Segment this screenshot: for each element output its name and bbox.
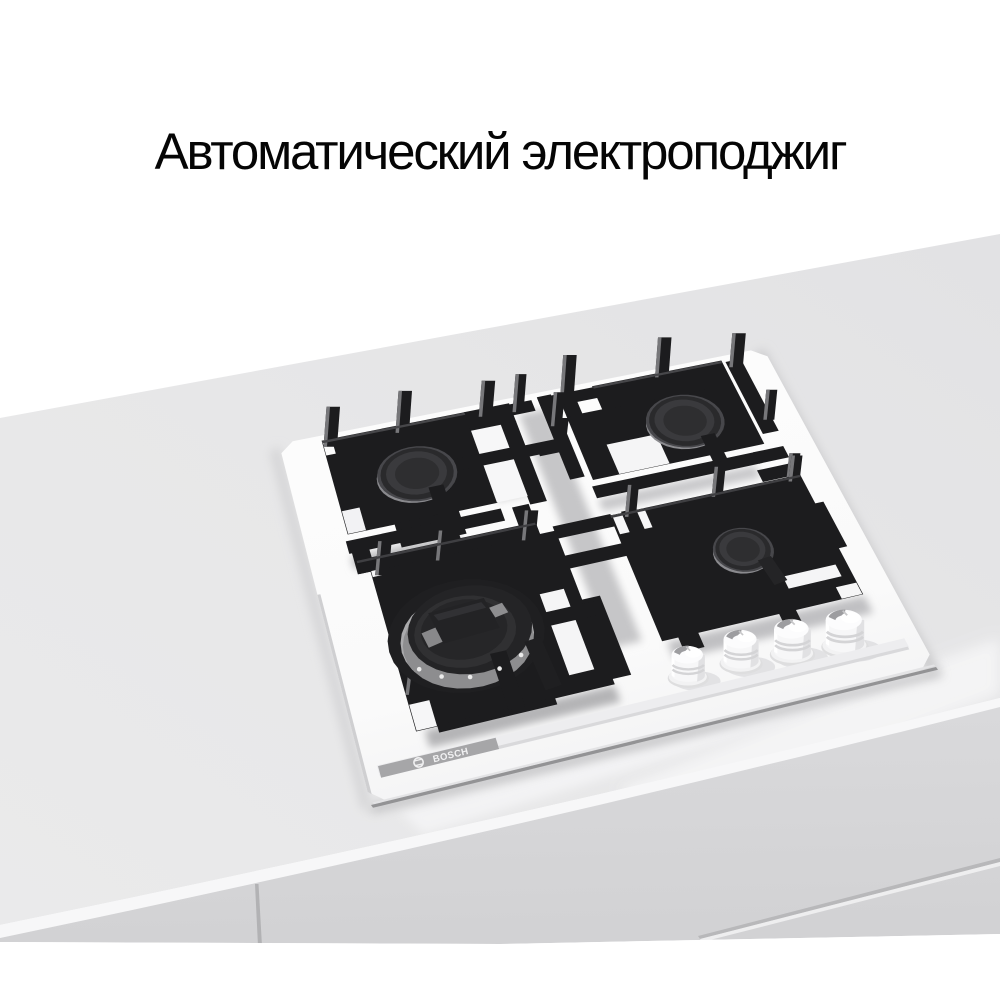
svg-text:Автоматический электроподжиг: Автоматический электроподжиг — [155, 123, 847, 180]
